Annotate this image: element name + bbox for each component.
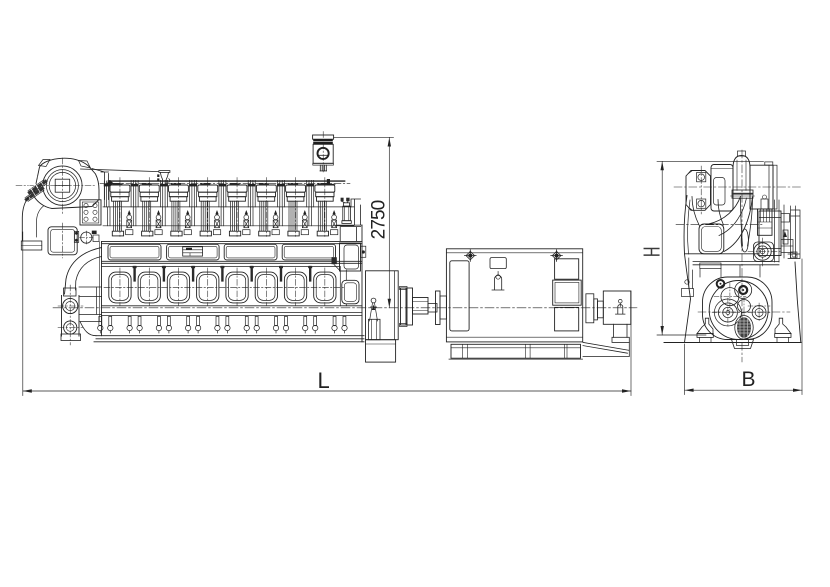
svg-text:B: B bbox=[741, 368, 755, 391]
svg-text:2750: 2750 bbox=[369, 200, 390, 239]
svg-text:L: L bbox=[318, 368, 330, 393]
